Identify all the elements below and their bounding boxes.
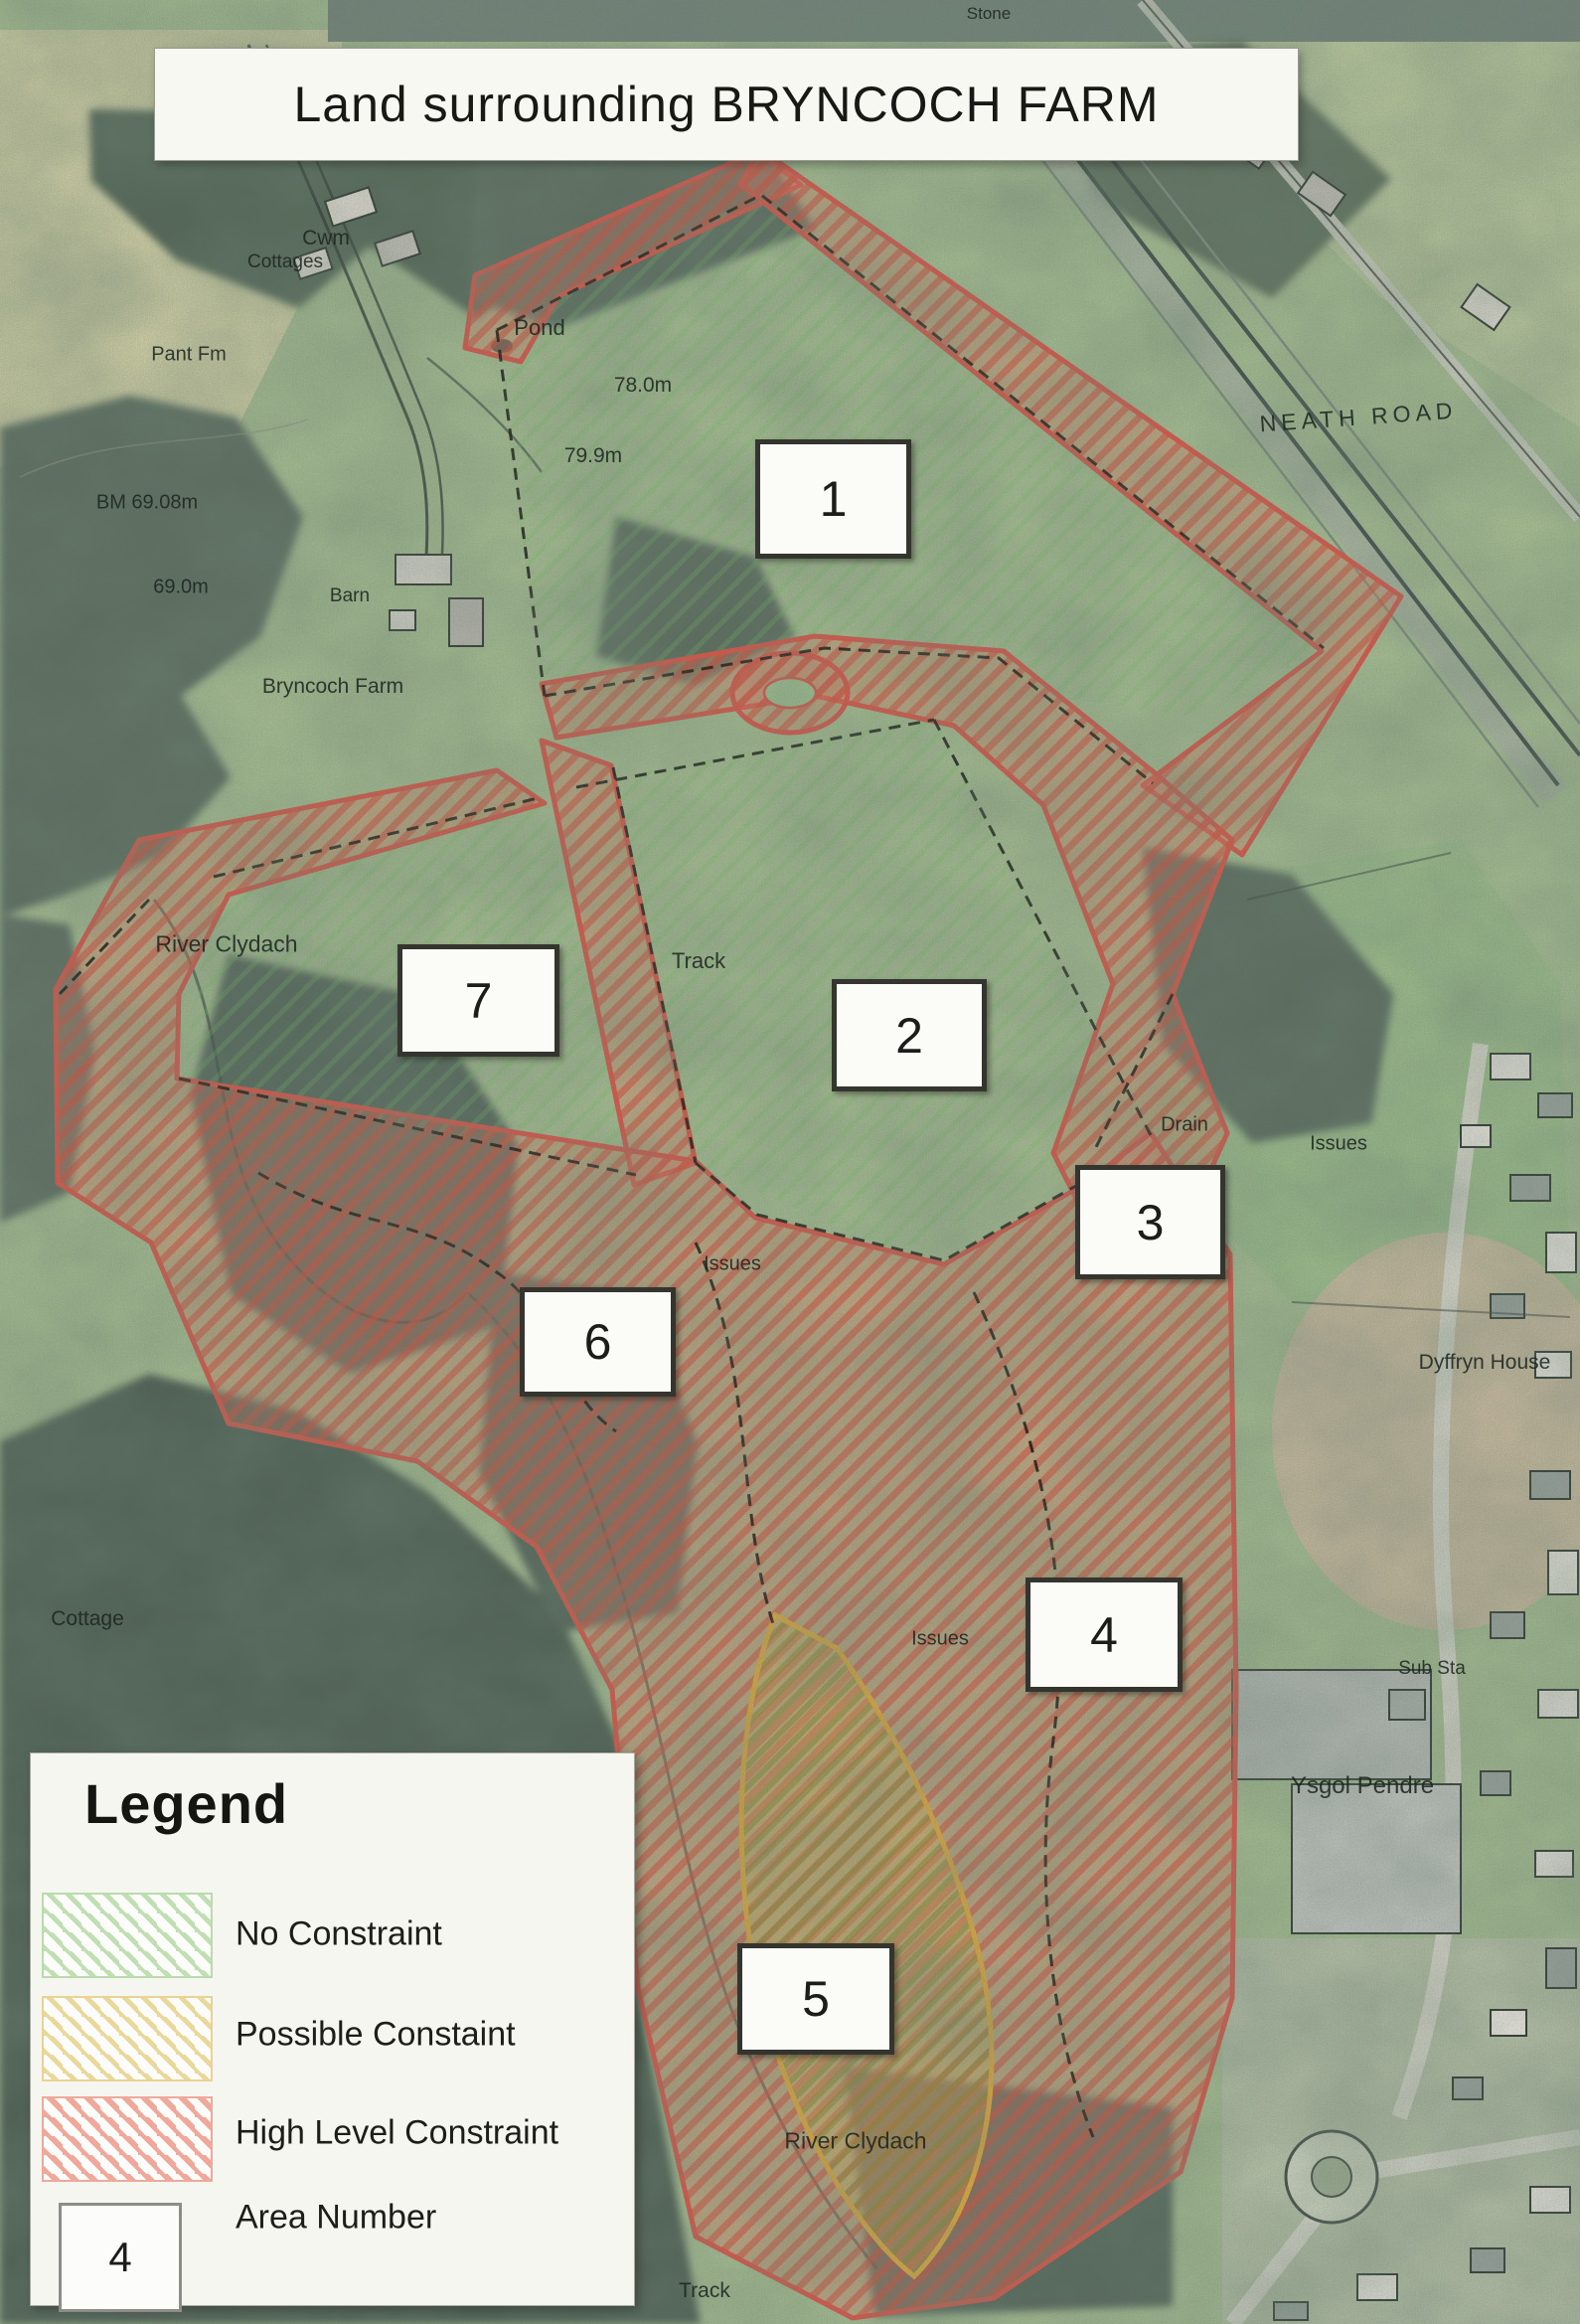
map-annotation: Ysgol Pendre (1291, 1772, 1434, 1800)
map-annotation: Cottages (247, 251, 323, 273)
map-annotation: 69.0m (153, 577, 209, 599)
map-annotation: Cottage (51, 1607, 124, 1631)
map-annotation: Barn (330, 585, 370, 607)
legend-heading: Legend (84, 1771, 288, 1836)
map-annotation: River Clydach (155, 931, 297, 958)
area-box-2: 2 (832, 979, 987, 1091)
map-annotation: Sub Sta (1398, 1658, 1466, 1680)
area-box-1: 1 (755, 439, 911, 559)
map-annotation: Drain (1161, 1114, 1208, 1137)
map-annotation: Issues (1310, 1133, 1367, 1156)
map-annotation: Bryncoch Farm (262, 675, 403, 699)
map-annotation: Pant Fm (151, 344, 227, 367)
yellow-hatch-swatch (42, 1996, 213, 2081)
map-annotation: 79.9m (564, 444, 622, 468)
map-title: Land surrounding BRYNCOCH FARM (293, 76, 1159, 133)
map-annotation: Track (679, 2279, 730, 2303)
area-box-7: 7 (397, 944, 559, 1057)
area-box-3: 3 (1075, 1165, 1225, 1279)
legend-label-yellow: Possible Constaint (236, 2016, 516, 2055)
map-title-banner: Land surrounding BRYNCOCH FARM (154, 48, 1299, 161)
map-annotation: Issues (704, 1253, 761, 1276)
map-annotation: River Clydach (784, 2128, 926, 2155)
legend-label-green: No Constraint (236, 1915, 442, 1954)
legend-panel: Legend No ConstraintPossible ConstaintHi… (30, 1752, 635, 2306)
legend-area-number-box: 4 (59, 2203, 182, 2312)
map-annotation: Stone (967, 4, 1011, 24)
green-hatch-swatch (42, 1893, 213, 1978)
red-hatch-swatch (42, 2096, 213, 2182)
legend-area-number-label: Area Number (236, 2199, 436, 2238)
map-annotation: 78.0m (614, 374, 672, 398)
area-box-5: 5 (737, 1943, 894, 2055)
scanned-map-page: Land surrounding BRYNCOCH FARM StoneCwmC… (0, 0, 1580, 2324)
map-annotation: Dyffryn House (1419, 1351, 1551, 1375)
area-box-6: 6 (520, 1287, 676, 1397)
map-annotation: Issues (911, 1628, 969, 1651)
area-box-4: 4 (1026, 1577, 1183, 1692)
map-annotation: Cwm (302, 227, 350, 250)
map-annotation: Track (672, 948, 725, 974)
legend-label-red: High Level Constraint (236, 2114, 558, 2153)
map-annotation: Pond (514, 315, 564, 341)
map-annotation: BM 69.08m (96, 492, 198, 515)
